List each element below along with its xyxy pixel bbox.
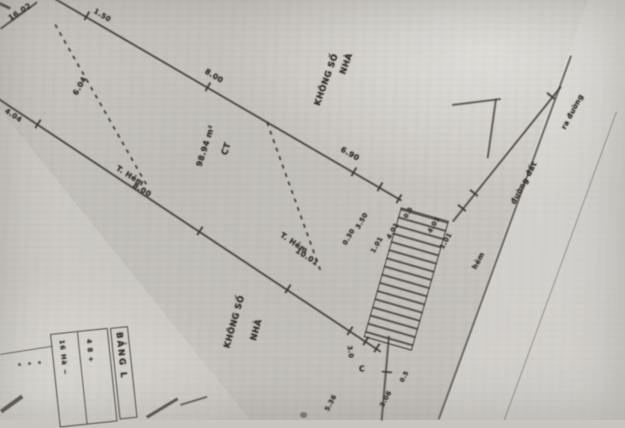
house-label: NHÀ [250, 318, 264, 342]
dot-mark [28, 362, 31, 365]
dimension-label: 4.04 [3, 108, 23, 124]
boundary-line-right [452, 86, 561, 222]
road-label: hẻm [472, 251, 487, 270]
dimension-label: 6.90 [339, 146, 360, 163]
road-label: ra đường [561, 93, 585, 130]
dimension-label: 16.02 [7, 2, 33, 22]
dimension-label: 0.5 [400, 370, 411, 383]
scan-blot [300, 412, 307, 418]
flag-symbol-pole [487, 99, 497, 159]
boundary-line-bottom [0, 96, 381, 353]
legend-table: 16 Hà − 4 8 + [50, 328, 118, 428]
scanned-cadastral-sketch: { "palette": { "paper": "#c8c5c0", "ink"… [0, 0, 625, 420]
dimension-label: 8.00 [203, 68, 224, 85]
house-label: KHÔNG SỐ [223, 295, 246, 350]
survey-drawing: 16.02 1.50 8.00 6.90 6.04 4.04 NHÀ KHÔNG… [0, 0, 625, 420]
legend-table-title: BẢNG L [114, 332, 129, 380]
area-label: 98.94 m² [196, 124, 217, 168]
dimension-label: 0.30 [342, 228, 356, 247]
legend-table-cell: 4 8 + [85, 339, 95, 364]
dimension-label: 3.06 [379, 390, 393, 409]
legend-table-cell: 16 Hà − [58, 339, 70, 375]
boundary-line-top [51, 0, 402, 202]
house-label: NHÀ [339, 52, 355, 76]
strip-extension-line [381, 336, 390, 421]
hatched-road-strip [364, 207, 449, 351]
dot-mark [38, 361, 41, 364]
dimension-label: 1.01 [370, 236, 384, 255]
road-line-1 [438, 55, 572, 419]
dimension-label: 3.0 [346, 345, 354, 358]
dimension-label: 6.04 [72, 75, 89, 96]
dashed-tie-line-1 [55, 24, 148, 186]
table-extension-line [0, 346, 53, 355]
scan-smudge [180, 396, 207, 406]
scan-smudge [146, 397, 178, 418]
road-line-2 [504, 112, 617, 421]
road-label: đường đất [510, 161, 539, 206]
scan-smudge [0, 2, 11, 10]
dimension-label: 5.36 [324, 394, 338, 413]
structure-code-label: CT [221, 142, 233, 157]
tick-mark [382, 371, 392, 374]
point-label: C [359, 365, 365, 373]
dot-mark [18, 363, 21, 366]
house-label: KHÔNG SỐ [314, 53, 341, 107]
dimension-label: 3.50 [355, 212, 369, 231]
scan-smudge [0, 395, 23, 414]
